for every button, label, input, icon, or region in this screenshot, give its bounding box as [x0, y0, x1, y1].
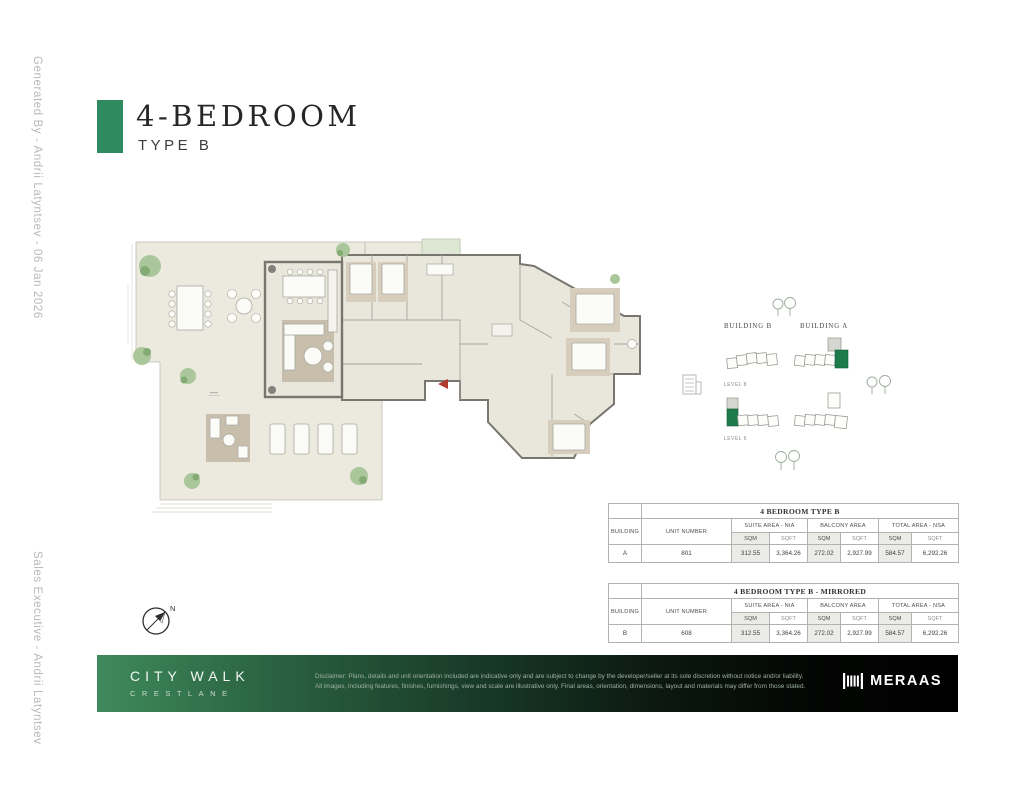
- brochure-page: Generated By - Andrii Latyntsev - 06 Jan…: [0, 0, 1024, 791]
- level-top-label: LEVEL 8: [724, 382, 747, 388]
- disclaimer-line-2: All images, including features, finishes…: [315, 682, 855, 692]
- meraas-wordmark: MERAAS: [870, 673, 942, 689]
- sqm-header: SQM: [879, 613, 912, 625]
- highlighted-unit: [835, 350, 848, 368]
- keyplan-building-b-level-8: [724, 342, 782, 380]
- total-sqft-value: 6,292.26: [912, 625, 959, 643]
- unit-table-type-b-mirrored: 4 BEDROOM TYPE B - MIRRORED BUILDING UNI…: [608, 583, 959, 643]
- page-title: 4-BEDROOM: [136, 99, 361, 133]
- total-area-header: TOTAL AREA - NSA: [879, 599, 959, 613]
- sqft-header: SQFT: [912, 533, 959, 545]
- balcony-sqft-value: 2,927.99: [841, 545, 879, 563]
- trees-icon-top: [770, 296, 798, 318]
- suite-area-header: SUITE AREA - NIA: [732, 519, 808, 533]
- balcony-sqm-value: 272.02: [808, 625, 841, 643]
- sqft-header: SQFT: [770, 533, 808, 545]
- suite-area-header: SUITE AREA - NIA: [732, 599, 808, 613]
- table-row: A 801 312.55 3,364.26 272.02 2,927.99 58…: [609, 545, 959, 563]
- bathroom: [492, 324, 512, 336]
- sqft-header: SQFT: [841, 533, 879, 545]
- keyplan-building-b-level-6: [724, 394, 782, 440]
- balcony-table: [628, 340, 637, 349]
- total-sqm-value: 584.57: [879, 545, 912, 563]
- compass-north-label: N: [170, 604, 175, 613]
- building-header: BUILDING: [609, 519, 642, 545]
- balcony-area-header: BALCONY AREA: [808, 519, 879, 533]
- building-a-label: BUILDING A: [792, 323, 856, 330]
- sqm-header: SQM: [732, 613, 770, 625]
- unit-number-header: UNIT NUMBER: [642, 599, 732, 625]
- sqm-header: SQM: [732, 533, 770, 545]
- outdoor-dining-table: [177, 286, 203, 330]
- outdoor-sofa-set: [206, 414, 250, 462]
- indoor-dining-table: [283, 276, 325, 297]
- building-icon-left: [680, 372, 704, 398]
- table-title: 4 BEDROOM TYPE B - MIRRORED: [642, 584, 959, 599]
- suite-sqm-value: 312.55: [732, 625, 770, 643]
- living-dining-room: [265, 262, 342, 397]
- trees-icon-bottom: [772, 448, 804, 472]
- total-area-header: TOTAL AREA - NSA: [879, 519, 959, 533]
- coffee-table: [304, 347, 322, 365]
- building-value: A: [609, 545, 642, 563]
- bathtub: [427, 264, 453, 275]
- generated-by-watermark: Generated By - Andrii Latyntsev - 06 Jan…: [31, 56, 43, 319]
- city-walk-logo: CITY WALK CRESTLANE: [130, 668, 250, 698]
- balcony-sqft-value: 2,927.99: [841, 625, 879, 643]
- total-sqft-value: 6,292.26: [912, 545, 959, 563]
- building-b-label: BUILDING B: [716, 323, 780, 330]
- suite-sqm-value: 312.55: [732, 545, 770, 563]
- balcony-sqm-value: 272.02: [808, 545, 841, 563]
- planter: [268, 386, 276, 394]
- sqm-header: SQM: [808, 533, 841, 545]
- unit-number-value: 608: [642, 625, 732, 643]
- kitchen-island: [328, 270, 337, 332]
- brand-city-walk: CITY WALK: [130, 668, 250, 684]
- floor-plan-drawing: [122, 224, 642, 516]
- keyplan-building-a-level-6: [792, 390, 850, 440]
- unit-number-value: 801: [642, 545, 732, 563]
- brand-crestlane: CRESTLANE: [130, 689, 250, 698]
- trees-icon-right: [864, 374, 894, 396]
- balcony-area-header: BALCONY AREA: [808, 599, 879, 613]
- level-bottom-label: LEVEL 6: [724, 436, 747, 442]
- building-header: BUILDING: [609, 599, 642, 625]
- table-corner-cell: [609, 584, 642, 599]
- table-corner-cell: [609, 504, 642, 519]
- total-sqm-value: 584.57: [879, 625, 912, 643]
- outdoor-round-table: [236, 298, 252, 314]
- unit-number-header: UNIT NUMBER: [642, 519, 732, 545]
- building-value: B: [609, 625, 642, 643]
- table-row: B 608 312.55 3,364.26 272.02 2,927.99 58…: [609, 625, 959, 643]
- sqm-header: SQM: [879, 533, 912, 545]
- suite-sqft-value: 3,364.26: [770, 625, 808, 643]
- highlighted-unit: [727, 409, 738, 426]
- unit-table-type-b: 4 BEDROOM TYPE B BUILDING UNIT NUMBER SU…: [608, 503, 959, 563]
- meraas-logo: MERAAS: [842, 670, 942, 692]
- page-subtitle: TYPE B: [138, 137, 212, 154]
- suite-sqft-value: 3,364.26: [770, 545, 808, 563]
- sqft-header: SQFT: [770, 613, 808, 625]
- title-accent-bar: [97, 100, 123, 153]
- sqft-header: SQFT: [912, 613, 959, 625]
- roof-garden-patch: [422, 239, 460, 255]
- keyplan-building-a-level-8: [792, 334, 850, 380]
- table-title: 4 BEDROOM TYPE B: [642, 504, 959, 519]
- footer-bar: CITY WALK CRESTLANE Disclaimer: Plans, d…: [97, 655, 958, 712]
- sqm-header: SQM: [808, 613, 841, 625]
- meraas-bars-icon: [842, 670, 864, 692]
- keyplan-block: BUILDING B BUILDING A LEVEL 8: [676, 290, 921, 485]
- sales-executive-watermark: Sales Executive - Andrii Latyntsev: [31, 551, 43, 745]
- disclaimer-text: Disclaimer: Plans, details and unit orie…: [315, 672, 855, 691]
- planter: [268, 265, 276, 273]
- compass-icon: N: [138, 599, 186, 641]
- disclaimer-line-1: Disclaimer: Plans, details and unit orie…: [315, 672, 855, 682]
- sqft-header: SQFT: [841, 613, 879, 625]
